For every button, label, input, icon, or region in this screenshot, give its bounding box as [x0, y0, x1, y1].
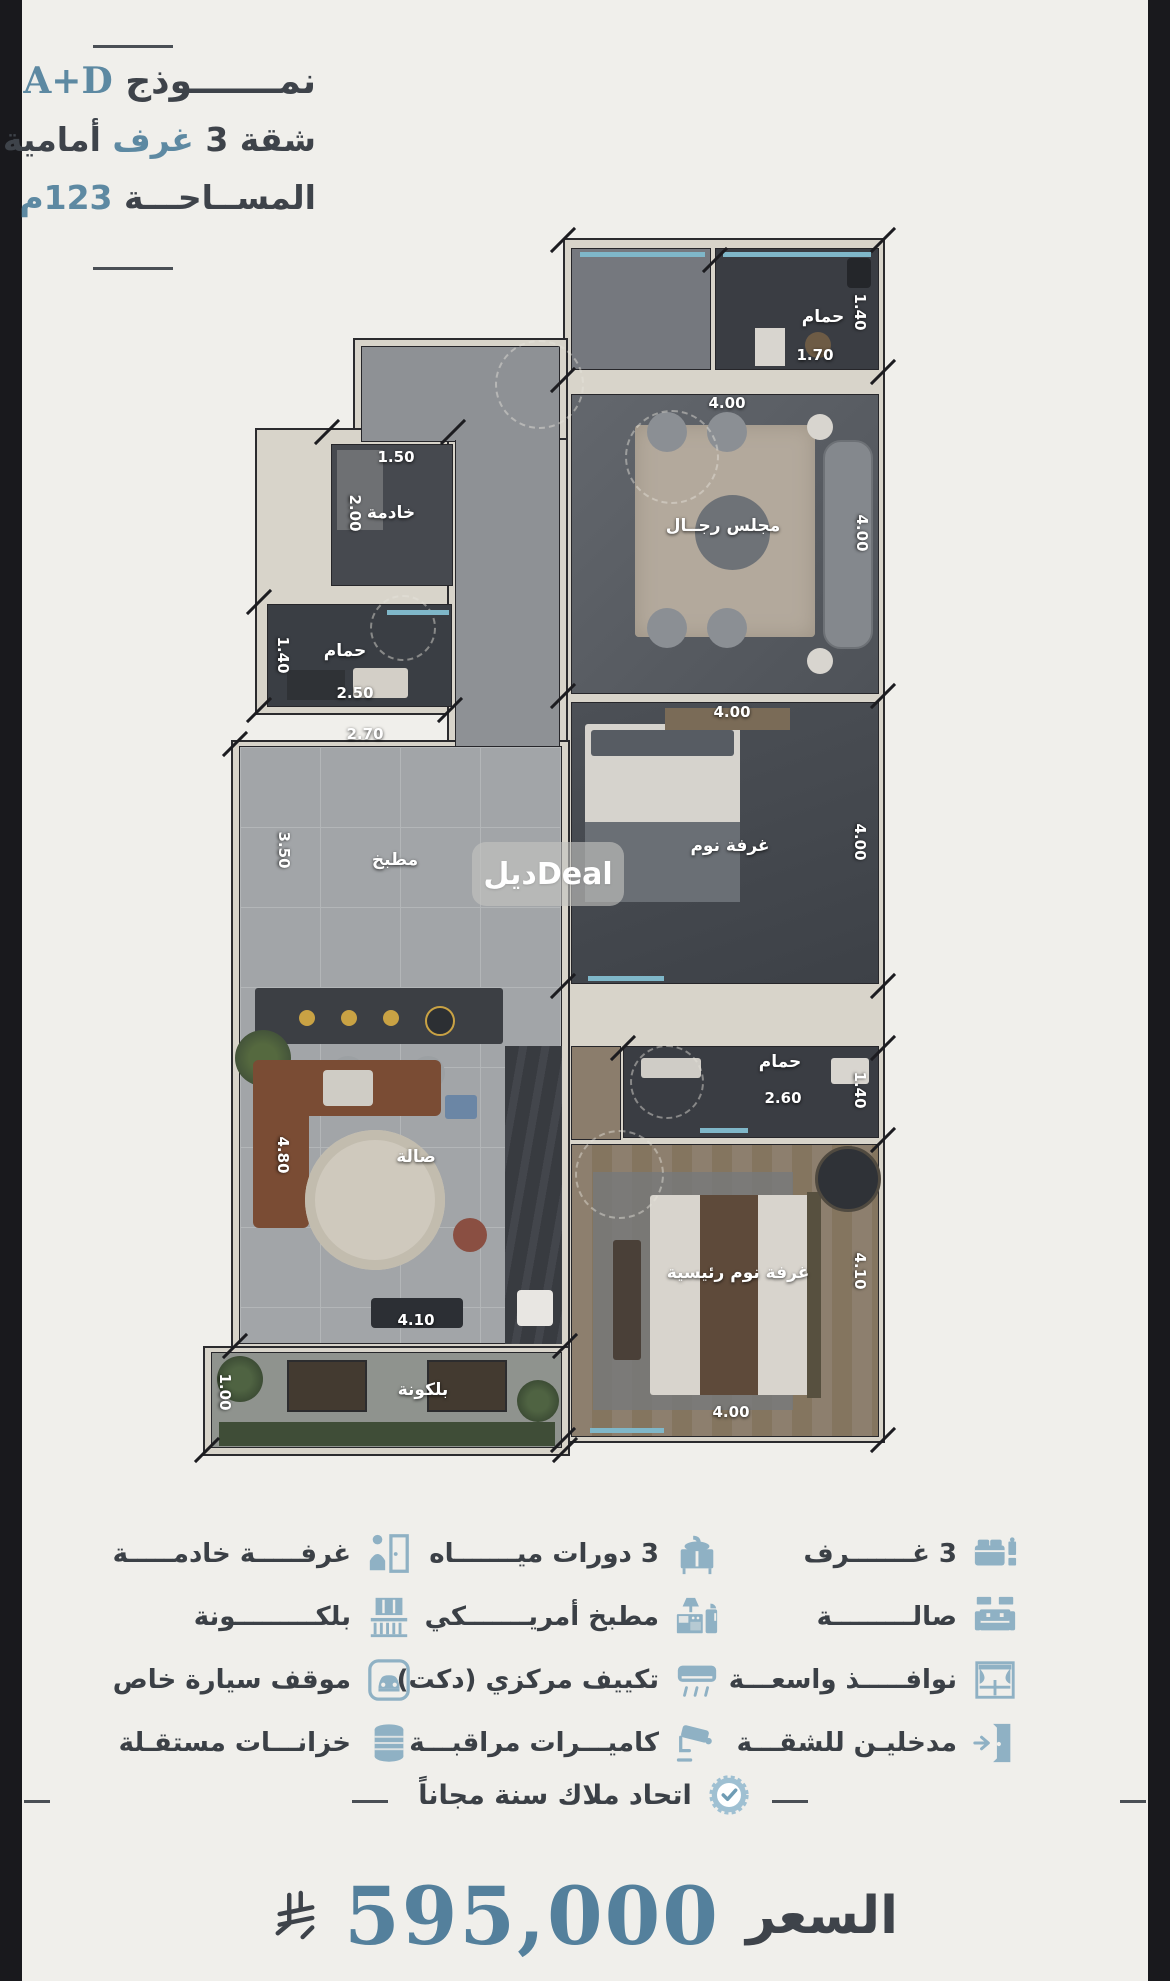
room-label-majlis: مجلس رجــال [666, 516, 780, 536]
window-icon [972, 1657, 1018, 1703]
saudi-riyal-symbol [272, 1889, 318, 1943]
dim-mid-bath-w: 2.60 [764, 1089, 801, 1107]
dim-maid-w: 1.50 [377, 448, 414, 466]
room-label-kitchen: مطبخ [372, 850, 418, 870]
hallway-floor [571, 1046, 621, 1140]
area-value: 123م [19, 178, 112, 217]
dim-top-bath-h: 1.40 [851, 293, 869, 330]
dim-mid-bath-h: 1.40 [851, 1071, 869, 1108]
dim-majlis-h: 4.00 [853, 514, 871, 551]
corridor-floor [455, 440, 560, 748]
door-arc [495, 340, 584, 429]
features-column-right: 3 غـــــــرف صالـــــــــة نوافـــــذ وا… [718, 1522, 1018, 1774]
side-table [807, 414, 833, 440]
hall-cushion [323, 1070, 373, 1106]
car-icon [366, 1657, 412, 1703]
top-bath-cabinet [755, 328, 785, 366]
room-label-left-bath: حمام [324, 641, 367, 661]
dim-balcony-h: 1.00 [216, 1373, 234, 1410]
maid-room-icon [366, 1531, 412, 1577]
price-label: السعر [746, 1886, 898, 1946]
kitchen-pot [341, 1010, 357, 1026]
kitchen-pot [383, 1010, 399, 1026]
bed-icon [972, 1531, 1018, 1577]
dim-hall-h: 4.80 [274, 1136, 292, 1173]
room-label-hall: صالة [396, 1147, 436, 1167]
room-label-balcony: بلكونة [398, 1380, 449, 1400]
ac-icon [674, 1657, 720, 1703]
door-arc [370, 595, 436, 661]
features-column-left: غرفـــــة خادمـــــة بلكـــــــــونة موق… [112, 1522, 412, 1774]
feature-balcony: بلكـــــــــونة [112, 1585, 412, 1648]
feature-entrances: مدخليـن للشقـــة [718, 1711, 1018, 1774]
dim-kitchen-h: 3.50 [275, 831, 293, 868]
window-strip [387, 610, 449, 615]
sofa-icon [972, 1594, 1018, 1640]
top-bath-fixture [847, 258, 871, 288]
tanks-icon [366, 1720, 412, 1766]
price-row: السعر 595,000 [0, 1856, 1170, 1976]
feature-cctv: كاميـــرات مراقبـــة [420, 1711, 720, 1774]
dim-master-h: 4.10 [851, 1252, 869, 1289]
room-label-maid: خادمة [367, 503, 415, 523]
room-label-top-bath: حمام [802, 307, 845, 327]
kitchen-stove [425, 1006, 455, 1036]
dim-maid-h: 2.00 [346, 494, 364, 531]
title-divider-top [93, 45, 173, 48]
feature-american-kitchen: مطبخ أمريـــــــكي [420, 1585, 720, 1648]
model-title: نمـــــــوذج A+D [58, 52, 316, 111]
window-strip [580, 252, 705, 257]
room-label-bedroom: غرفة نوم [690, 836, 769, 856]
majlis-chair [707, 608, 747, 648]
master-blanket [700, 1195, 758, 1395]
deal-watermark: ديلDeal [472, 842, 624, 906]
feature-rooms: 3 غـــــــرف [718, 1522, 1018, 1585]
door-entry-icon [972, 1720, 1018, 1766]
dim-bedroom-w: 4.00 [713, 703, 750, 721]
master-chair [815, 1146, 881, 1212]
floor-plan: ديلDeal حمام 1.40 1.70 4.00 مجلس رجــال … [195, 200, 895, 1470]
balcony-icon [366, 1594, 412, 1640]
feature-maid-room: غرفـــــة خادمـــــة [112, 1522, 412, 1585]
feature-central-ac: تكييف مركزي (دكت) [420, 1648, 720, 1711]
room-label-master: غرفة نوم رئيسية [667, 1263, 810, 1283]
window-strip [723, 252, 871, 257]
hall-appliance [517, 1290, 553, 1326]
dim-left-bath-w: 2.50 [336, 684, 373, 702]
dim-master-w: 4.00 [712, 1403, 749, 1421]
master-bench [613, 1240, 641, 1360]
model-code: A+D [23, 60, 112, 102]
feature-windows: نوافـــــذ واسعـــة [718, 1648, 1018, 1711]
camera-icon [674, 1720, 720, 1766]
door-arc [575, 1130, 664, 1219]
balcony-plant [517, 1380, 559, 1422]
model-word: نمـــــــوذج [125, 61, 316, 102]
dim-bedroom-h: 4.00 [851, 823, 869, 860]
hall-pouf [453, 1218, 487, 1252]
dim-kitchen-w: 2.70 [346, 725, 383, 743]
dim-top-bath-w: 1.70 [796, 346, 833, 364]
dim-majlis-w: 4.00 [708, 394, 745, 412]
feature-tanks: خزانـــات مستقـلة [112, 1711, 412, 1774]
check-rosette-icon [706, 1772, 752, 1818]
side-table [807, 648, 833, 674]
door-arc [625, 410, 719, 504]
title-divider-bottom [93, 267, 173, 270]
entry-top-floor [571, 248, 711, 370]
right-edge-strip [1148, 0, 1170, 1981]
window-strip [590, 1428, 664, 1433]
room-label-mid-bath: حمام [759, 1052, 802, 1072]
left-edge-strip [0, 0, 22, 1981]
kitchen-island [255, 988, 503, 1044]
feature-hall: صالـــــــــة [718, 1585, 1018, 1648]
features-column-middle: 3 دورات ميـــــــاه مطبخ أمريـــــــكي ت… [420, 1522, 720, 1774]
majlis-chair [647, 608, 687, 648]
feature-parking: موقف سيارة خاص [112, 1648, 412, 1711]
master-headboard [807, 1192, 821, 1398]
apartment-subtitle: شقة 3 غرف أمامية [58, 111, 316, 169]
dim-hall-w: 4.10 [397, 1311, 434, 1329]
balcony-hedge [219, 1422, 555, 1446]
flyer-page: نمـــــــوذج A+D شقة 3 غرف أمامية المســ… [0, 0, 1170, 1981]
owners-union-badge: اتحاد ملاك سنة مجاناً [0, 1772, 1170, 1818]
door-arc [630, 1045, 704, 1119]
window-strip [588, 976, 664, 981]
balcony-planter [287, 1360, 367, 1412]
feature-bathrooms: 3 دورات ميـــــــاه [420, 1522, 720, 1585]
price-value: 595,000 [344, 1869, 720, 1963]
kitchen-icon [674, 1594, 720, 1640]
hall-tablet [445, 1095, 477, 1119]
kitchen-pot [299, 1010, 315, 1026]
bedroom-pillows [591, 730, 734, 756]
sink-icon [674, 1531, 720, 1577]
window-strip [700, 1128, 748, 1133]
dim-left-bath-h: 1.40 [274, 636, 292, 673]
